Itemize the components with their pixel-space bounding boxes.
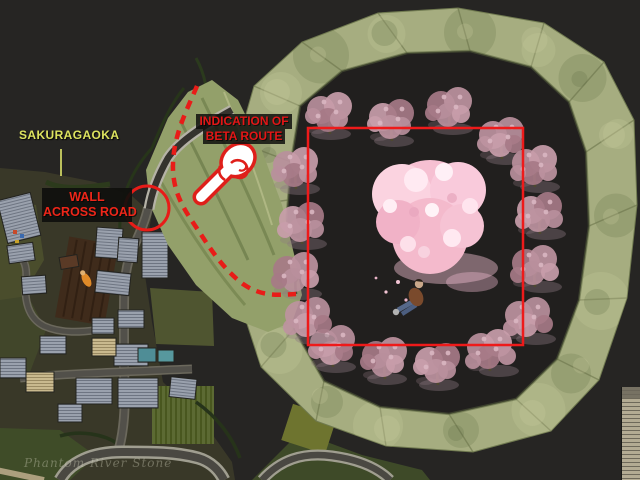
route-annotation-line2: BETA ROUTE	[203, 129, 286, 144]
annotated-game-map: SAKURAGAOKA WALL ACROSS ROAD INDICATION …	[0, 0, 640, 480]
rooftop-strip	[621, 387, 640, 480]
route-annotation-label: INDICATION OF BETA ROUTE	[190, 114, 298, 144]
wall-annotation-line1: WALL	[43, 190, 131, 205]
wall-annotation-label: WALL ACROSS ROAD	[42, 188, 132, 222]
region-pointer-line	[60, 149, 62, 176]
wall-annotation-line2: ACROSS ROAD	[43, 205, 131, 220]
watermark-text: Phantom River Stone	[24, 456, 172, 470]
route-annotation-line1: INDICATION OF	[196, 114, 291, 129]
region-label: SAKURAGAOKA	[19, 128, 119, 142]
map-artwork	[0, 0, 640, 480]
